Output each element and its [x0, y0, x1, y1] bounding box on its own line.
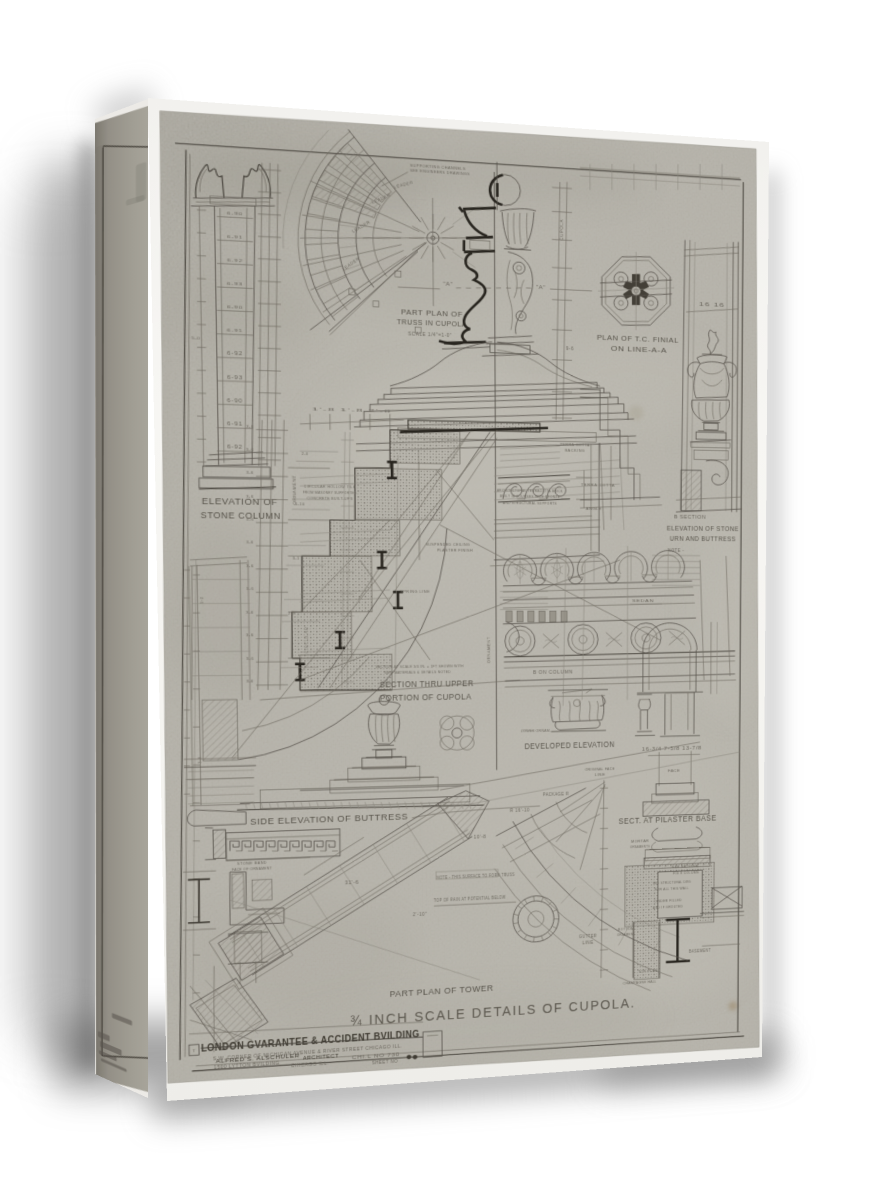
svg-text:31'-6: 31'-6 [345, 880, 359, 886]
svg-text:3-6: 3-6 [246, 563, 254, 568]
svg-text:3-6: 3-6 [246, 494, 254, 499]
svg-text:AND STRUCTURAL SUPPORTS: AND STRUCTURAL SUPPORTS [503, 500, 557, 505]
svg-text:LOWER ORNAM.: LOWER ORNAM. [521, 728, 551, 733]
svg-text:6-93: 6-93 [227, 281, 243, 287]
svg-text:R 16'-10: R 16'-10 [510, 808, 530, 814]
svg-text:SECTION AT SCALE 3/4 IN. = 1FT: SECTION AT SCALE 3/4 IN. = 1FT SHOWN WIT… [376, 664, 464, 670]
svg-text:ARCHITECTURAL TERRACOTTA BRICK: ARCHITECTURAL TERRACOTTA BRICK [497, 488, 563, 493]
svg-text:3-6: 3-6 [246, 517, 254, 522]
svg-text:5-0: 5-0 [192, 336, 201, 342]
svg-text:6-93: 6-93 [227, 375, 243, 381]
svg-text:6-92: 6-92 [227, 351, 243, 357]
svg-text:10'-8: 10'-8 [474, 834, 487, 840]
svg-text:6-92: 6-92 [227, 445, 243, 451]
svg-text:SPRING LINE: SPRING LINE [400, 589, 430, 594]
svg-text:ELEVATION OF: ELEVATION OF [202, 497, 278, 507]
svg-text:3-6: 3-6 [246, 656, 254, 661]
svg-text:6-91: 6-91 [227, 234, 243, 240]
svg-text:6-92: 6-92 [227, 258, 243, 264]
svg-text:3-6: 3-6 [246, 587, 254, 592]
svg-text:SECTION THRU UPPER: SECTION THRU UPPER [380, 679, 474, 689]
svg-text:PLASTER FINISH: PLASTER FINISH [437, 548, 473, 554]
svg-text:ORNAMENTS: ORNAMENTS [630, 844, 650, 850]
svg-text:URN AND BUTTRESS: URN AND BUTTRESS [670, 535, 736, 543]
svg-text:5-2: 5-2 [199, 596, 204, 603]
svg-text:BUILT IN COURSES WITH BRONZE: BUILT IN COURSES WITH BRONZE [500, 494, 560, 499]
svg-text:LINE: LINE [595, 772, 606, 777]
svg-text:B SECTION: B SECTION [674, 515, 706, 520]
svg-text:6-90: 6-90 [227, 398, 243, 404]
svg-text:MORTAR: MORTAR [631, 838, 649, 844]
svg-text:B ON COLUMN: B ON COLUMN [533, 670, 573, 676]
svg-text:6-90: 6-90 [227, 305, 243, 311]
svg-text:3-1: 3-1 [292, 556, 300, 561]
svg-text:"A": "A" [536, 284, 546, 291]
svg-text:9-6: 9-6 [566, 346, 574, 352]
svg-text:NEW MATERIALS & DETAILS NOTED: NEW MATERIALS & DETAILS NOTED [385, 670, 451, 676]
svg-text:2'-10": 2'-10" [413, 912, 427, 918]
svg-text:6-91: 6-91 [227, 328, 243, 334]
svg-text:GUTTER: GUTTER [579, 934, 597, 940]
svg-text:3-6: 3-6 [246, 471, 254, 476]
svg-text:3-6: 3-6 [246, 424, 254, 429]
svg-text:2-0: 2-0 [301, 451, 308, 456]
svg-text:CUPOLA: CUPOLA [559, 219, 564, 241]
svg-text:"A": "A" [443, 281, 453, 288]
svg-text:ORIGINAL FACE: ORIGINAL FACE [585, 766, 615, 771]
svg-text:T: T [192, 1048, 195, 1053]
svg-text:6-91: 6-91 [227, 422, 243, 428]
svg-text:3-6: 3-6 [246, 540, 254, 545]
svg-text:FROM MASONRY SUPPORTED: FROM MASONRY SUPPORTED [303, 490, 357, 495]
svg-text:3-6: 3-6 [246, 610, 254, 615]
svg-text:SUSPENDED CEILING: SUSPENDED CEILING [426, 542, 470, 548]
svg-text:BOTTOM: BOTTOM [618, 926, 634, 931]
svg-text:16 16: 16 16 [699, 302, 725, 308]
svg-text:ELEVATION OF STONE: ELEVATION OF STONE [667, 525, 739, 533]
svg-text:ORNAMENT: ORNAMENT [486, 637, 491, 664]
svg-text:TERRA COTTA: TERRA COTTA [581, 482, 615, 488]
svg-text:6-90: 6-90 [227, 211, 243, 218]
svg-text:3-6: 3-6 [246, 633, 254, 638]
svg-text:3-8: 3-8 [197, 756, 202, 763]
svg-text:CONCRETE BUILT-UPS: CONCRETE BUILT-UPS [307, 496, 353, 501]
svg-text:TERRA COTTA: TERRA COTTA [560, 442, 590, 447]
svg-text:BACKING: BACKING [565, 448, 585, 453]
svg-text:SEDAN: SEDAN [632, 599, 654, 603]
svg-text:STONE COLUMN: STONE COLUMN [201, 511, 281, 521]
svg-text:PACKAGE R: PACKAGE R [543, 792, 569, 798]
svg-text:1-10: 1-10 [295, 501, 305, 506]
svg-text:LINE: LINE [582, 940, 593, 946]
svg-text:PORTION OF CUPOLA: PORTION OF CUPOLA [380, 692, 472, 702]
svg-text:3-6: 3-6 [246, 447, 254, 452]
svg-text:2-8: 2-8 [288, 611, 296, 616]
svg-text:FACE: FACE [668, 769, 680, 774]
